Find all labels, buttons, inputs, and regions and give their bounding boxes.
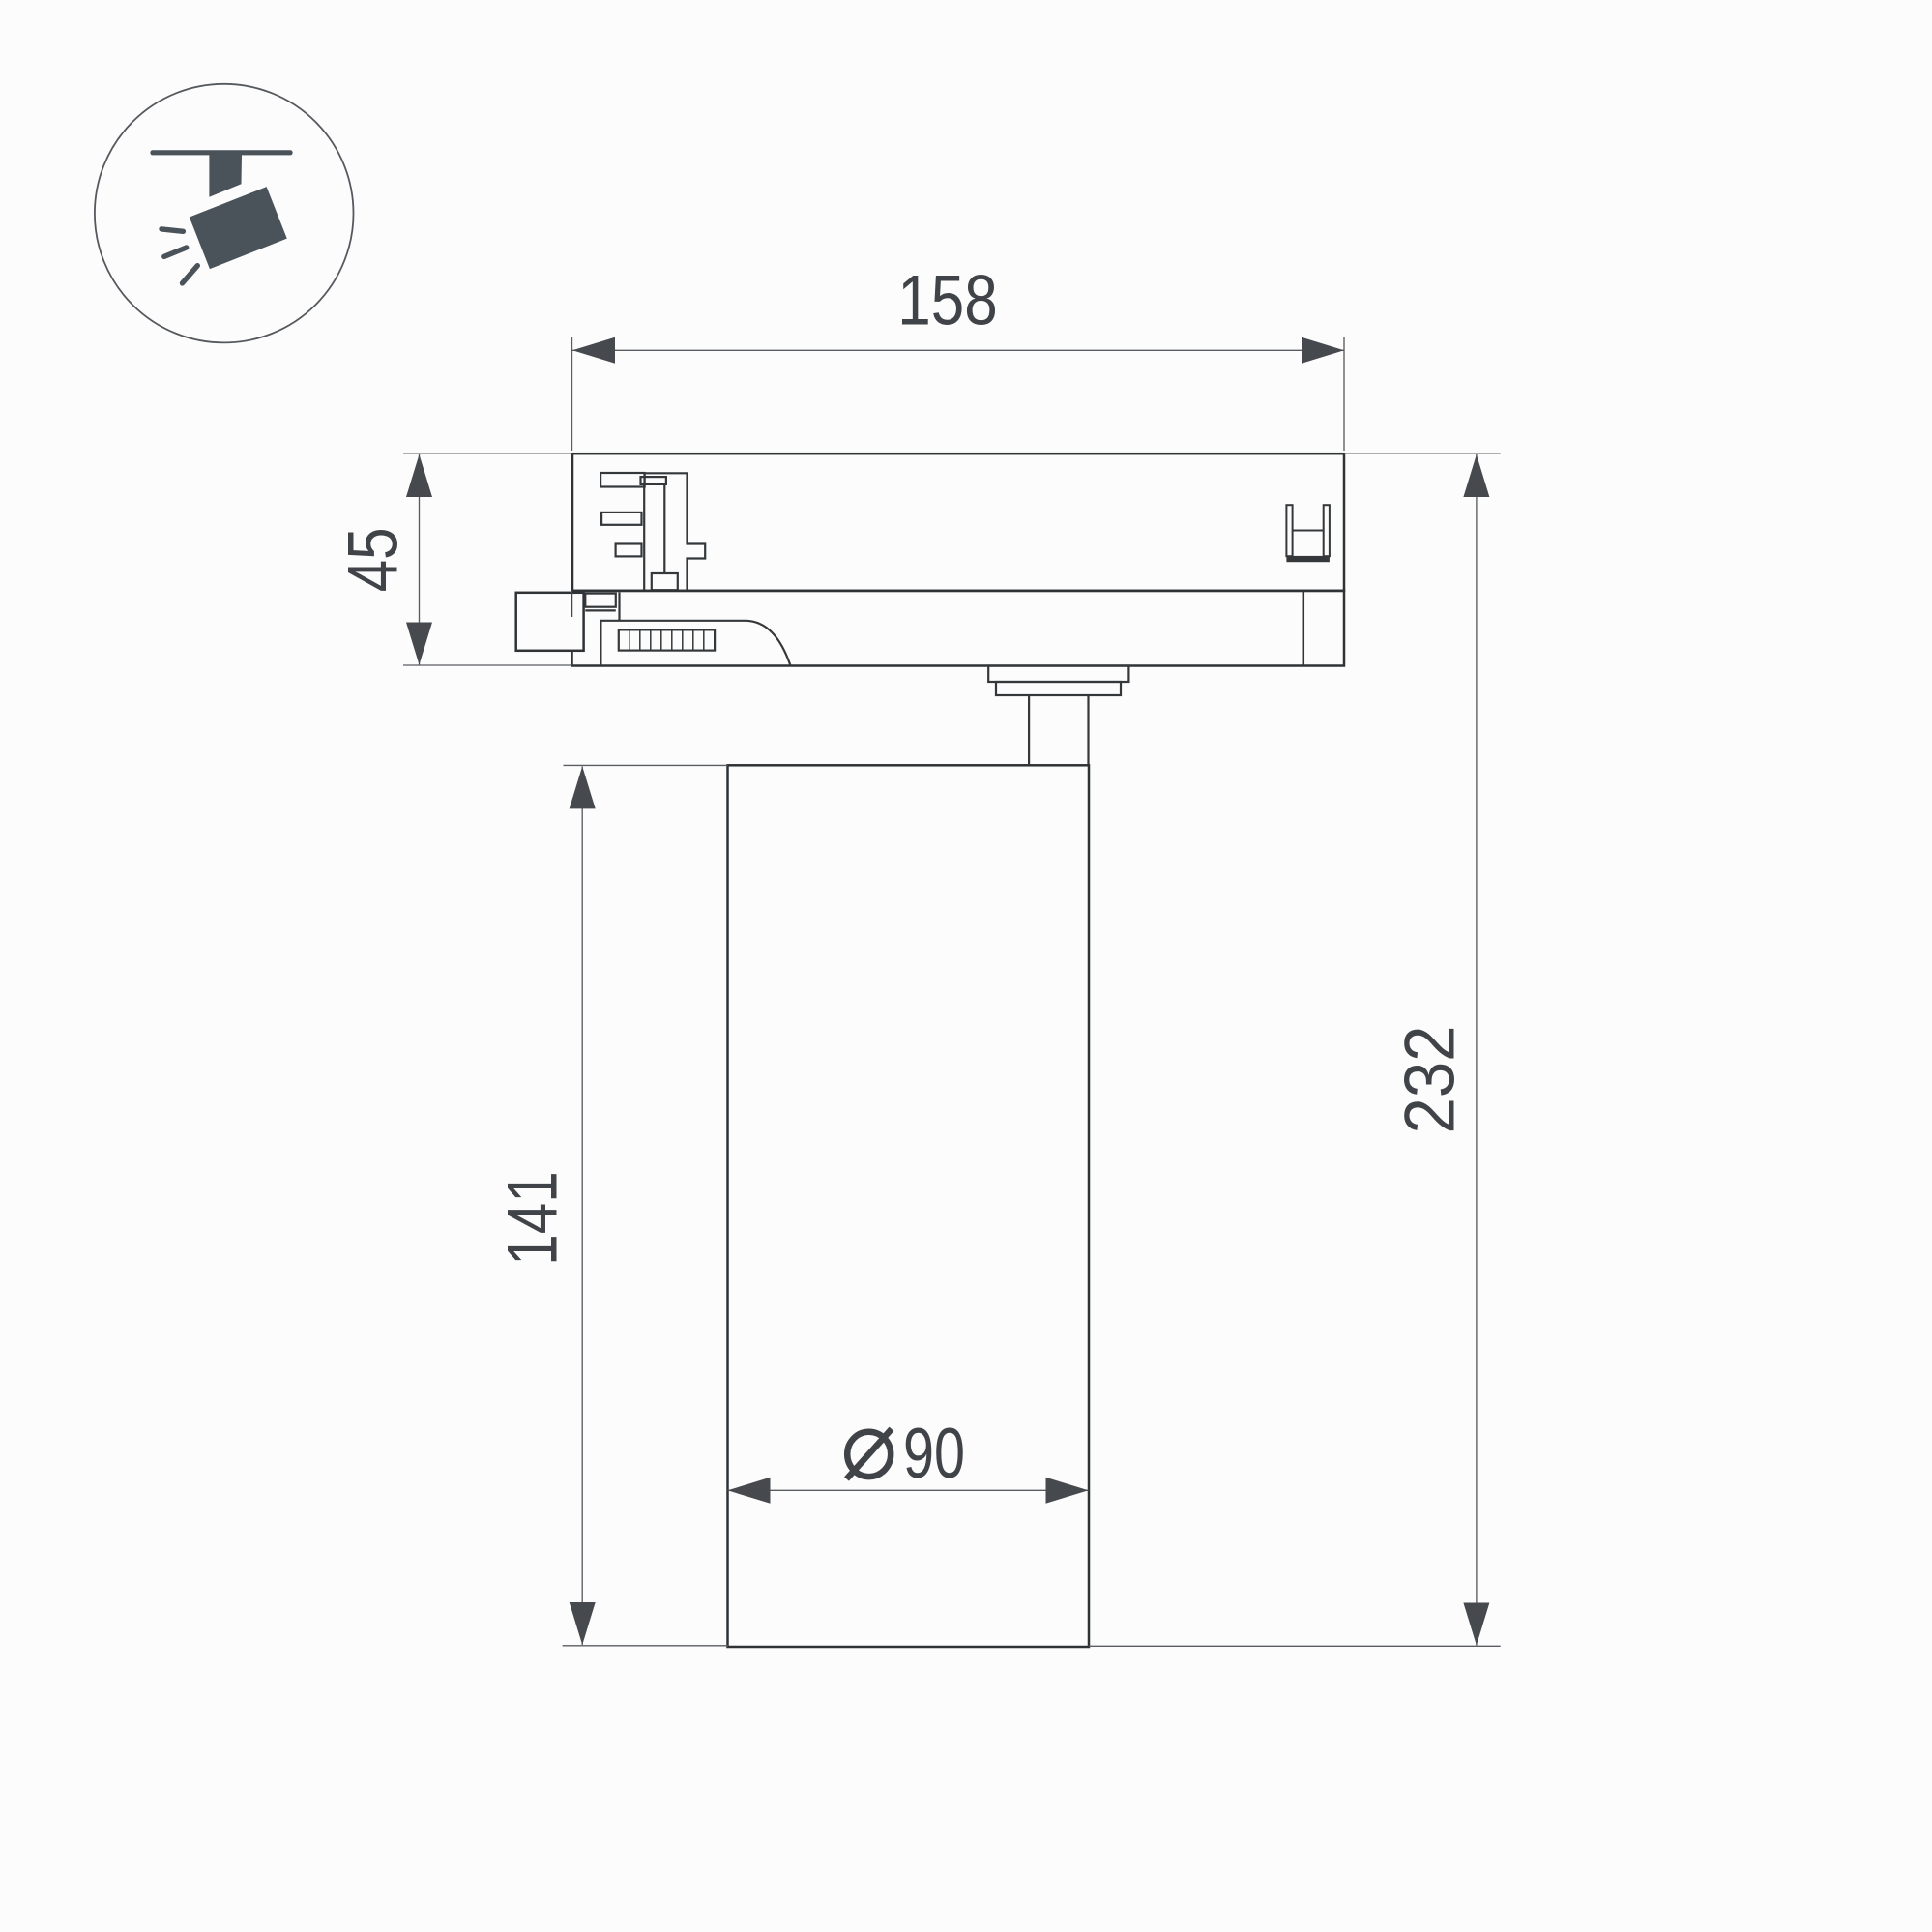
svg-text:141: 141 [494, 1171, 572, 1266]
svg-text:232: 232 [1391, 1026, 1470, 1134]
svg-text:158: 158 [897, 261, 998, 339]
svg-text:90: 90 [903, 1415, 965, 1493]
svg-text:45: 45 [335, 528, 413, 593]
